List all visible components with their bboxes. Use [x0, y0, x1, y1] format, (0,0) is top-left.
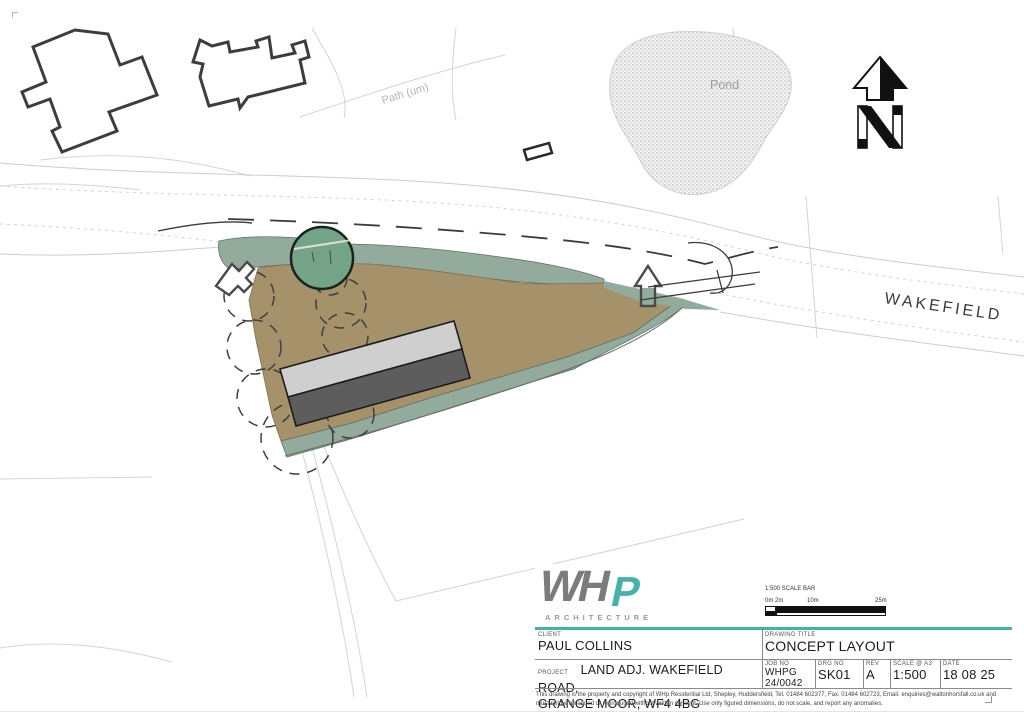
- pond-area: [610, 32, 792, 195]
- existing-building-west: [22, 30, 157, 152]
- title-block: WH P ARCHITECTURE 1:500 SCALE BAR 0m 2m …: [535, 564, 1012, 690]
- existing-buildings: [22, 30, 309, 152]
- logo-subtitle: ARCHITECTURE: [545, 613, 652, 622]
- drawing-sheet: Pond Path (um): [0, 0, 1024, 724]
- path-label: Path (um): [380, 81, 430, 107]
- scale-bar-title: 1:500 SCALE BAR: [765, 586, 895, 592]
- pond-label: Pond: [710, 78, 739, 92]
- sheet-corner-top-left: [12, 12, 18, 18]
- scale-tick-0: 0m 2m: [765, 598, 783, 604]
- proposed-tree: [291, 227, 353, 289]
- drawing-title-value: CONCEPT LAYOUT: [765, 638, 895, 654]
- rev-value: A: [866, 667, 879, 682]
- logo-wh-text: WH: [535, 562, 613, 612]
- project-label: PROJECT: [538, 670, 568, 676]
- scale-tick-25: 25m: [875, 598, 887, 604]
- title-block-row-client: CLIENT PAUL COLLINS DRAWING TITLE CONCEP…: [535, 630, 1012, 659]
- roadside-structure: [524, 143, 552, 160]
- disclaimer-text: This drawing is the property and copyrig…: [536, 691, 1006, 710]
- east-tip-sketch-lines: [640, 243, 760, 300]
- job-no-line1: WHPG: [765, 667, 803, 678]
- scale-bar-ticks: 0m 2m 10m 25m: [765, 598, 895, 606]
- date-value: 18 08 25: [943, 667, 995, 682]
- scale-bar-row-bottom: [765, 612, 886, 616]
- drg-no-value: SK01: [818, 667, 851, 682]
- scale-value: 1:500: [893, 667, 932, 682]
- sheet-bottom-edge: [0, 711, 1024, 712]
- access-marker-green: [641, 288, 654, 306]
- road-name-label: WAKEFIELD: [883, 290, 1003, 324]
- logo-p-text: P: [607, 568, 645, 616]
- scale-tick-10: 10m: [807, 598, 819, 604]
- site-entrance-arrow: [216, 262, 254, 295]
- whp-architecture-logo: WH P ARCHITECTURE: [540, 566, 680, 626]
- north-arrow-icon: [854, 57, 906, 148]
- client-value: PAUL COLLINS: [538, 638, 632, 653]
- scale-bar: 1:500 SCALE BAR 0m 2m 10m 25m: [765, 586, 895, 616]
- title-block-row-project: PROJECT LAND ADJ. WAKEFIELD ROAD, GRANGE…: [535, 659, 1012, 688]
- sheet-corner-mark: [985, 696, 992, 703]
- existing-building-east: [193, 37, 309, 108]
